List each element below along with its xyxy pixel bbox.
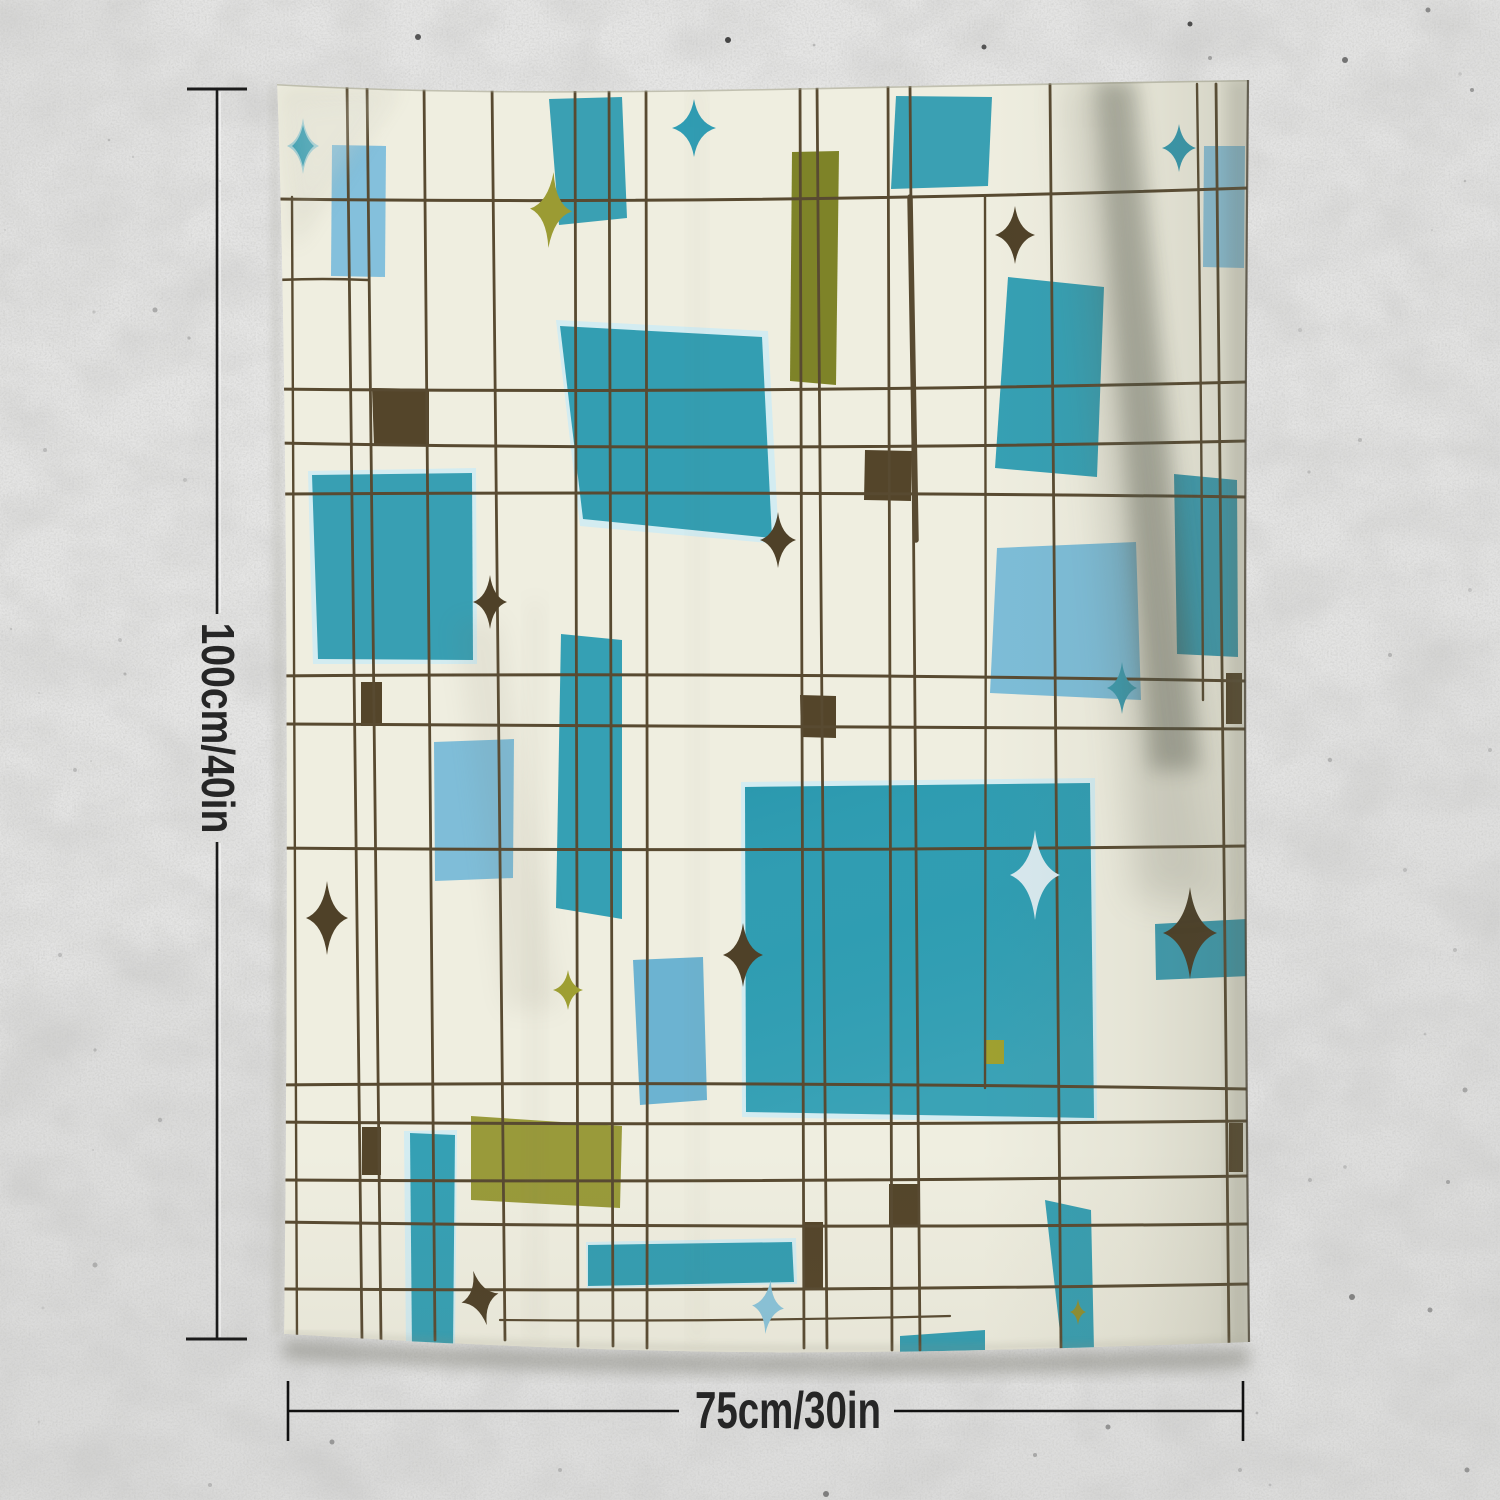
svg-text:75cm/30in: 75cm/30in	[695, 1381, 881, 1439]
svg-text:100cm/40in: 100cm/40in	[191, 623, 243, 834]
